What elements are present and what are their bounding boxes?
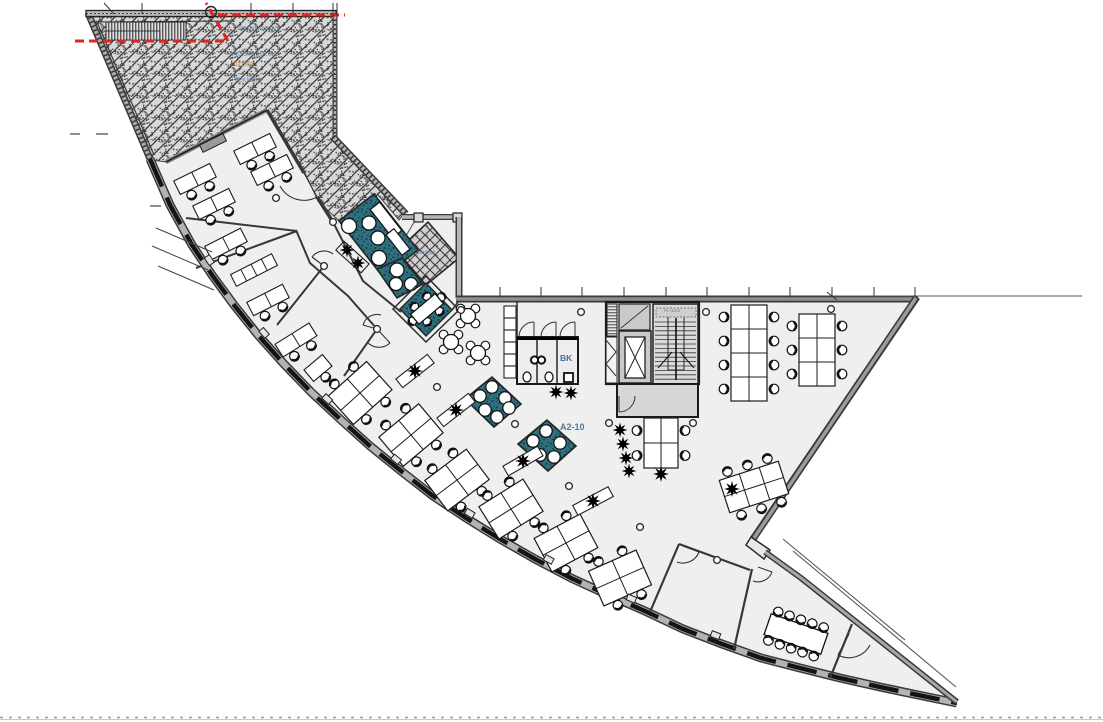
svg-text:Sunlight: Sunlight — [417, 250, 436, 256]
svg-text:021001: 021001 — [234, 62, 255, 68]
svg-text:Sportsrom/tekn.: Sportsrom/tekn. — [237, 26, 280, 32]
svg-text:TEKNISK: TEKNISK — [234, 77, 262, 84]
svg-text:A2-10: A2-10 — [560, 422, 585, 432]
svg-text:409345(360.013): 409345(360.013) — [234, 52, 280, 58]
svg-text:PL+4000: PL+4000 — [664, 308, 681, 313]
svg-text:BK: BK — [560, 353, 573, 363]
